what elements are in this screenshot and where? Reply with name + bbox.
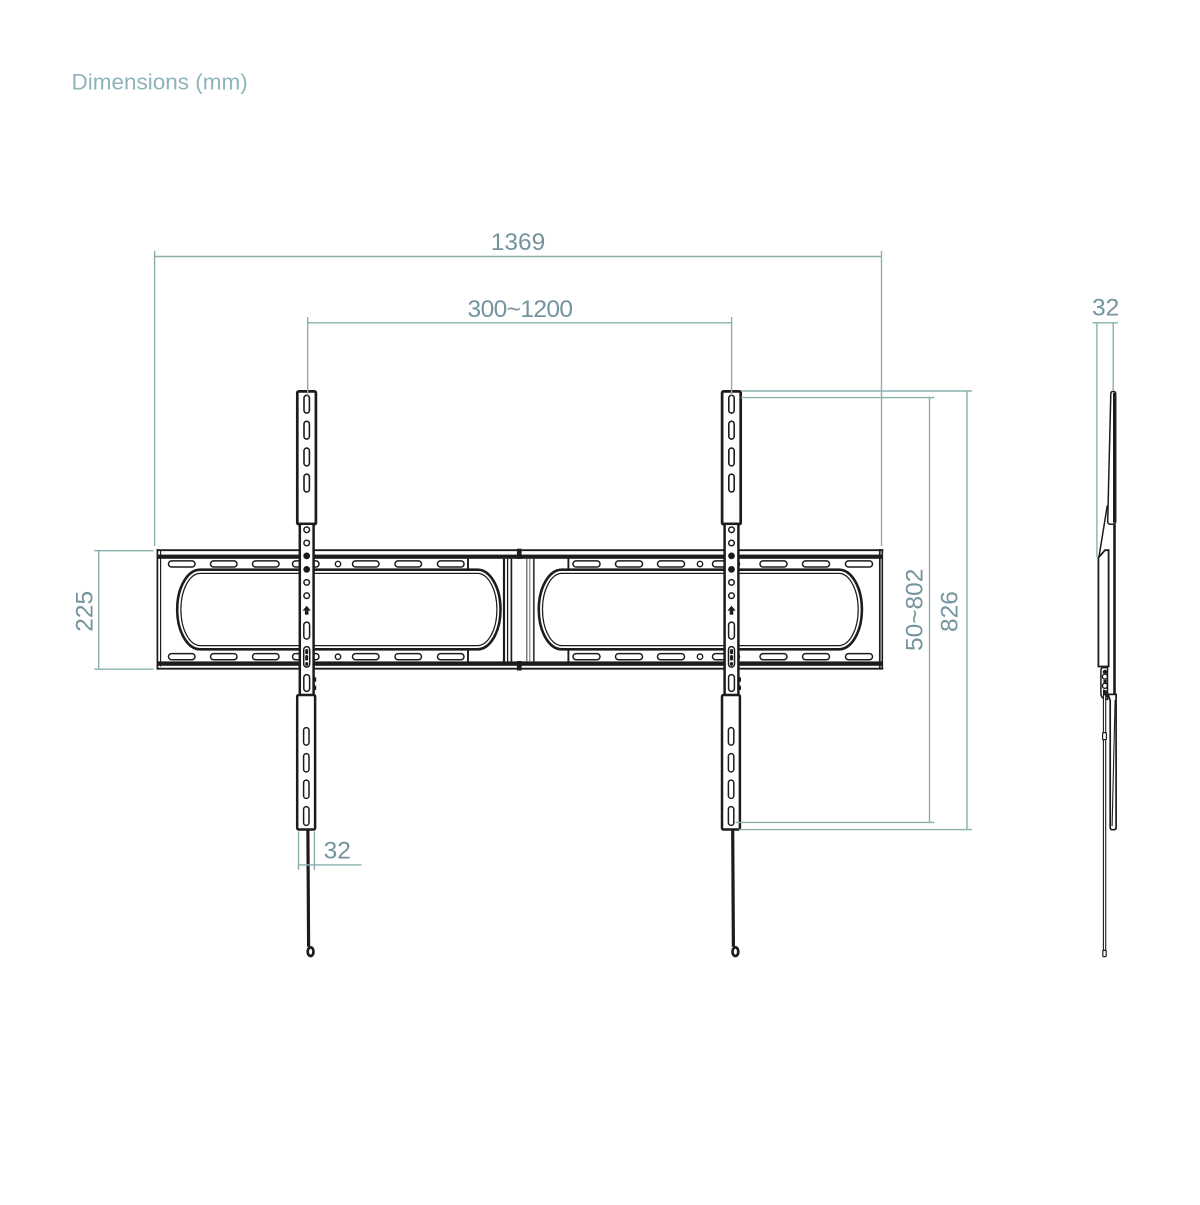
svg-text:300~1200: 300~1200: [468, 296, 573, 323]
svg-text:1369: 1369: [491, 229, 546, 256]
svg-text:Dimensions (mm): Dimensions (mm): [72, 70, 248, 95]
svg-text:50~802: 50~802: [901, 569, 928, 651]
svg-text:225: 225: [72, 591, 99, 632]
svg-text:32: 32: [324, 838, 351, 865]
svg-text:32: 32: [1092, 295, 1119, 322]
svg-text:826: 826: [937, 591, 964, 632]
